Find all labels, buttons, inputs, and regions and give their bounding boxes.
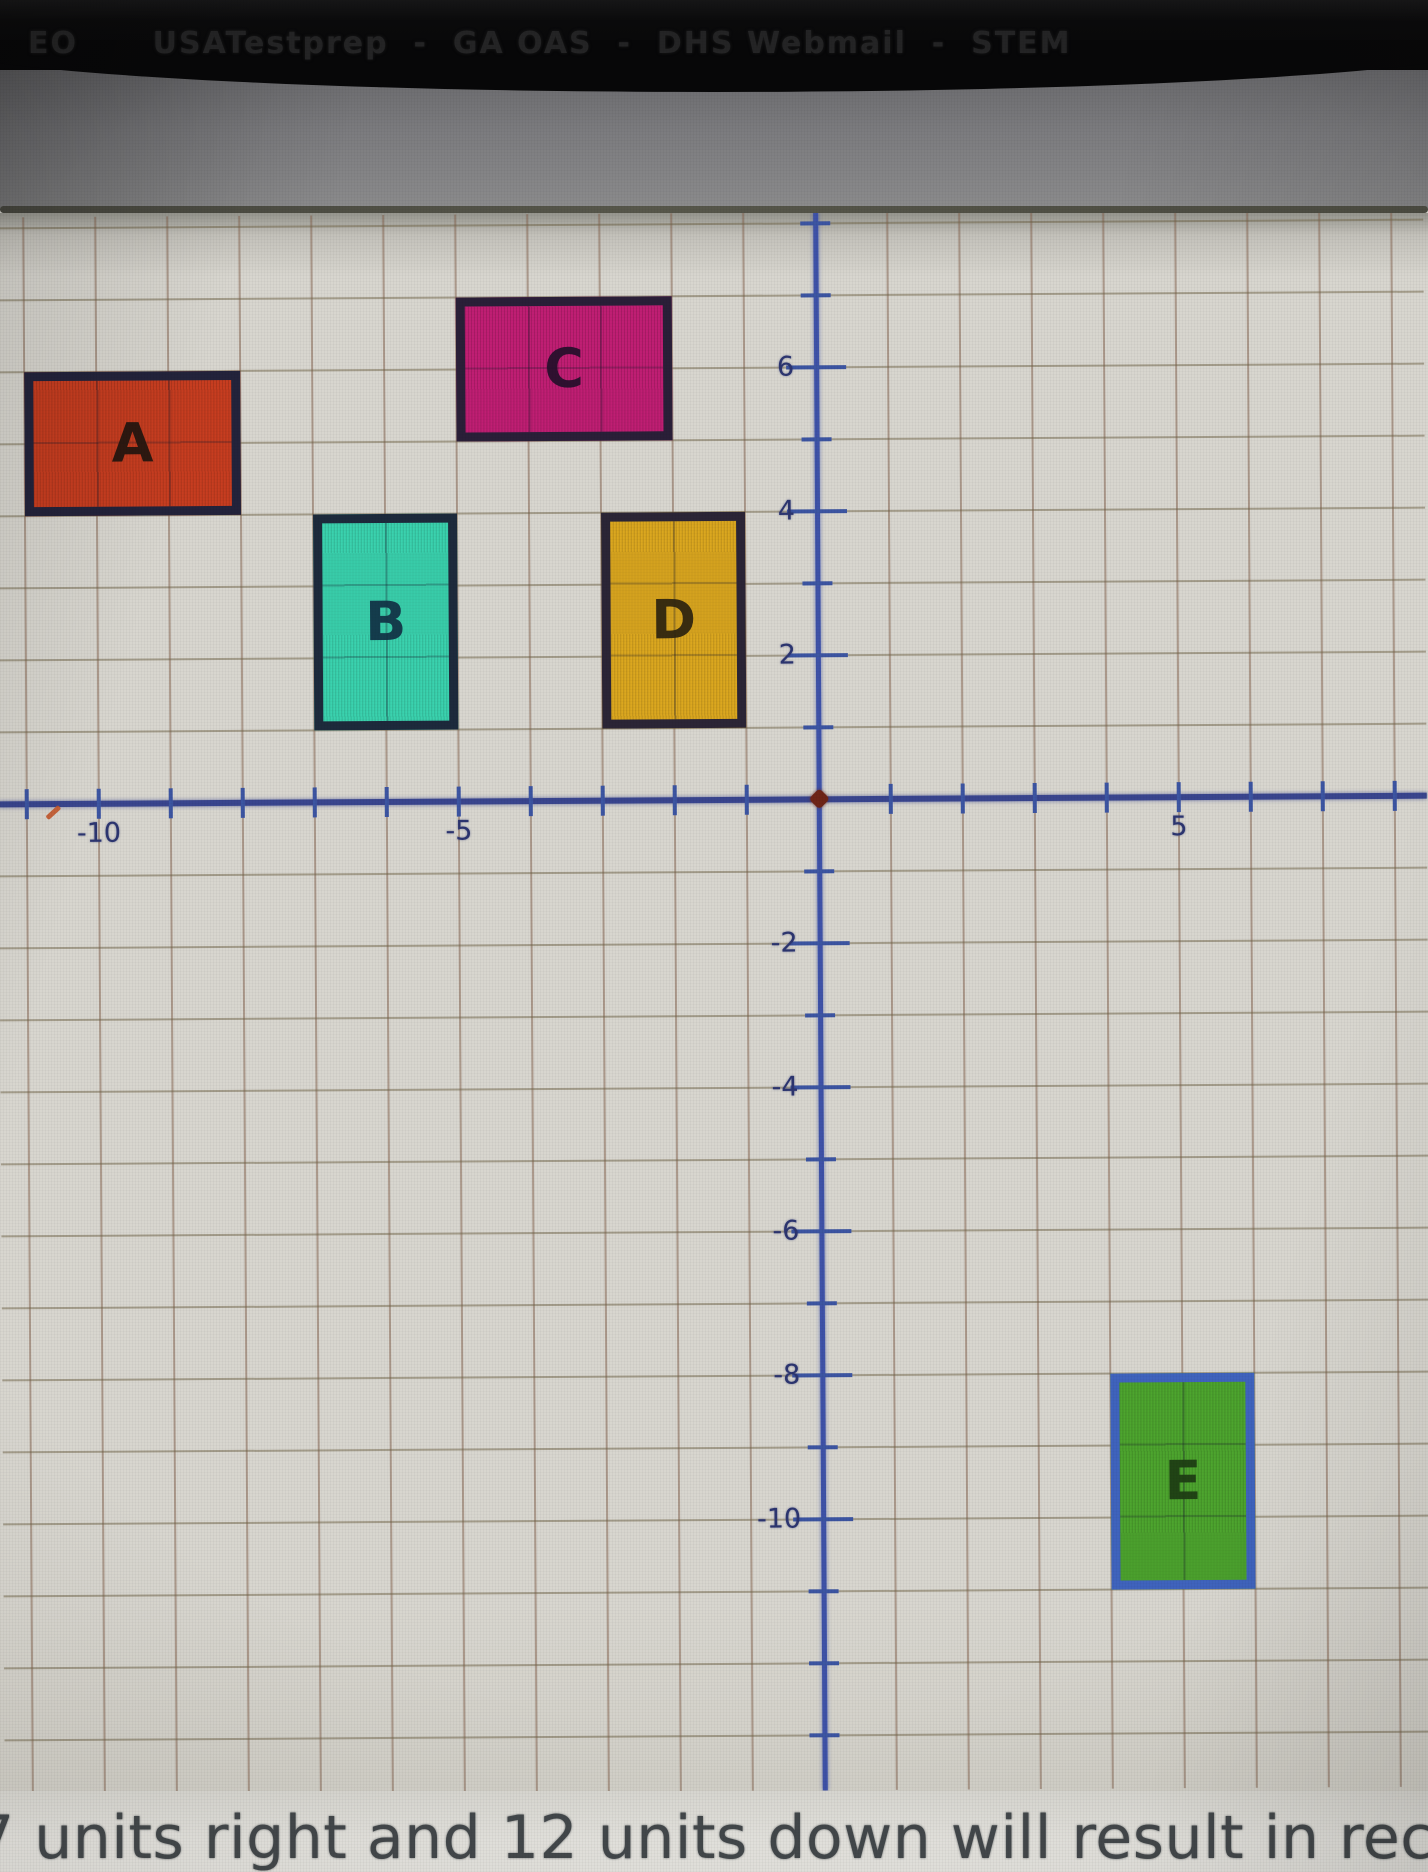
gridline-horizontal xyxy=(1,1083,1428,1094)
x-axis-tick xyxy=(313,787,317,817)
gridline-vertical xyxy=(1030,213,1042,1789)
y-axis-tick-label: -6 xyxy=(729,1215,799,1246)
y-axis-tick xyxy=(806,1157,836,1161)
gridline-horizontal xyxy=(0,219,1423,230)
gridline-vertical xyxy=(958,213,970,1789)
y-axis xyxy=(813,213,828,1790)
rectangle-B: B xyxy=(313,514,458,731)
y-axis-tick xyxy=(807,1301,837,1305)
y-axis-tick xyxy=(792,1373,852,1377)
y-axis-tick xyxy=(802,581,832,585)
x-axis-tick xyxy=(385,787,389,817)
gridline-horizontal xyxy=(2,1299,1428,1310)
x-axis-tick xyxy=(97,789,101,819)
y-axis-tick xyxy=(808,1445,838,1449)
gridline-vertical xyxy=(1318,213,1330,1787)
gridline-horizontal xyxy=(1,1155,1428,1166)
y-axis-tick xyxy=(803,725,833,729)
gridline-vertical xyxy=(454,215,466,1791)
rectangle-D: D xyxy=(601,512,746,729)
gridline-vertical xyxy=(526,214,538,1791)
x-axis-tick xyxy=(25,789,29,819)
gridline-vertical xyxy=(742,213,754,1791)
y-axis-tick xyxy=(788,653,848,657)
x-axis-tick xyxy=(961,783,965,813)
y-axis-tick xyxy=(790,941,850,945)
y-axis-tick xyxy=(801,293,831,297)
y-axis-tick-label: -10 xyxy=(731,1503,801,1534)
plane-contents: -10-55642-2-4-6-8-10ABCDE xyxy=(0,213,1428,1791)
coordinate-plane: -10-55642-2-4-6-8-10ABCDE xyxy=(0,213,1428,1791)
rectangle-D-label: D xyxy=(651,593,696,647)
rectangle-C: C xyxy=(456,296,673,441)
y-axis-tick-label: 6 xyxy=(724,351,794,382)
y-axis-tick xyxy=(809,1733,839,1737)
gridline-vertical xyxy=(886,213,898,1790)
x-axis-tick xyxy=(1321,781,1325,811)
y-axis-tick xyxy=(791,1085,851,1089)
gridline-vertical xyxy=(382,215,394,1791)
y-axis-tick xyxy=(805,1013,835,1017)
screen-photo: EO USATestprep - GA OAS - DHS Webmail - … xyxy=(0,0,1428,1872)
x-axis-tick xyxy=(1249,782,1253,812)
y-axis-tick xyxy=(793,1517,853,1521)
x-axis-tick-label: -10 xyxy=(77,818,121,849)
gridline-horizontal xyxy=(0,939,1428,950)
rectangle-A-label: A xyxy=(112,416,154,470)
x-axis xyxy=(0,793,1427,808)
gridline-vertical xyxy=(598,214,610,1791)
x-axis-tick xyxy=(457,787,461,817)
gridline-vertical xyxy=(1390,213,1402,1787)
x-axis-tick xyxy=(889,784,893,814)
x-axis-tick-label: -5 xyxy=(445,815,472,846)
y-axis-tick xyxy=(787,509,847,513)
rectangle-B-label: B xyxy=(365,595,407,649)
x-axis-tick xyxy=(529,786,533,816)
y-axis-tick xyxy=(809,1661,839,1665)
rectangle-E-label: E xyxy=(1164,1454,1201,1508)
gridline-vertical xyxy=(310,215,322,1791)
red-mark-artifact xyxy=(45,805,61,820)
gridline-horizontal xyxy=(0,1011,1428,1022)
x-axis-tick xyxy=(1105,783,1109,813)
gridline-vertical xyxy=(670,213,682,1791)
gridline-horizontal xyxy=(0,291,1424,302)
x-axis-tick xyxy=(169,788,173,818)
x-axis-tick xyxy=(673,785,677,815)
x-axis-tick xyxy=(241,788,245,818)
gridline-horizontal xyxy=(4,1659,1428,1670)
bookmarks-text: EO USATestprep - GA OAS - DHS Webmail - … xyxy=(28,26,1072,61)
question-strip: 7 units right and 12 units down will res… xyxy=(0,1791,1428,1872)
gridline-horizontal xyxy=(1,1227,1428,1238)
rectangle-A: A xyxy=(24,371,241,516)
y-axis-tick-label: -4 xyxy=(728,1071,798,1102)
gridline-horizontal xyxy=(0,867,1427,878)
rectangle-E: E xyxy=(1110,1373,1255,1590)
x-axis-tick xyxy=(745,785,749,815)
y-axis-tick xyxy=(791,1229,851,1233)
x-axis-tick xyxy=(1393,781,1397,811)
question-text: 7 units right and 12 units down will res… xyxy=(0,1803,1428,1872)
x-axis-tick-label: 5 xyxy=(1170,811,1187,842)
header-divider-line xyxy=(0,206,1428,213)
y-axis-tick-label: -8 xyxy=(730,1359,800,1390)
x-axis-tick xyxy=(1033,783,1037,813)
x-axis-tick xyxy=(601,786,605,816)
y-axis-tick xyxy=(809,1589,839,1593)
rectangle-C-label: C xyxy=(544,342,584,396)
origin-point xyxy=(809,788,830,809)
y-axis-tick xyxy=(802,437,832,441)
y-axis-tick-label: -2 xyxy=(728,927,798,958)
browser-bookmarks-bar[interactable]: EO USATestprep - GA OAS - DHS Webmail - … xyxy=(0,0,1428,70)
y-axis-tick xyxy=(800,221,830,225)
gridline-horizontal xyxy=(4,1731,1428,1742)
y-axis-tick xyxy=(786,365,846,369)
x-axis-tick xyxy=(1177,782,1181,812)
y-axis-tick xyxy=(804,869,834,873)
